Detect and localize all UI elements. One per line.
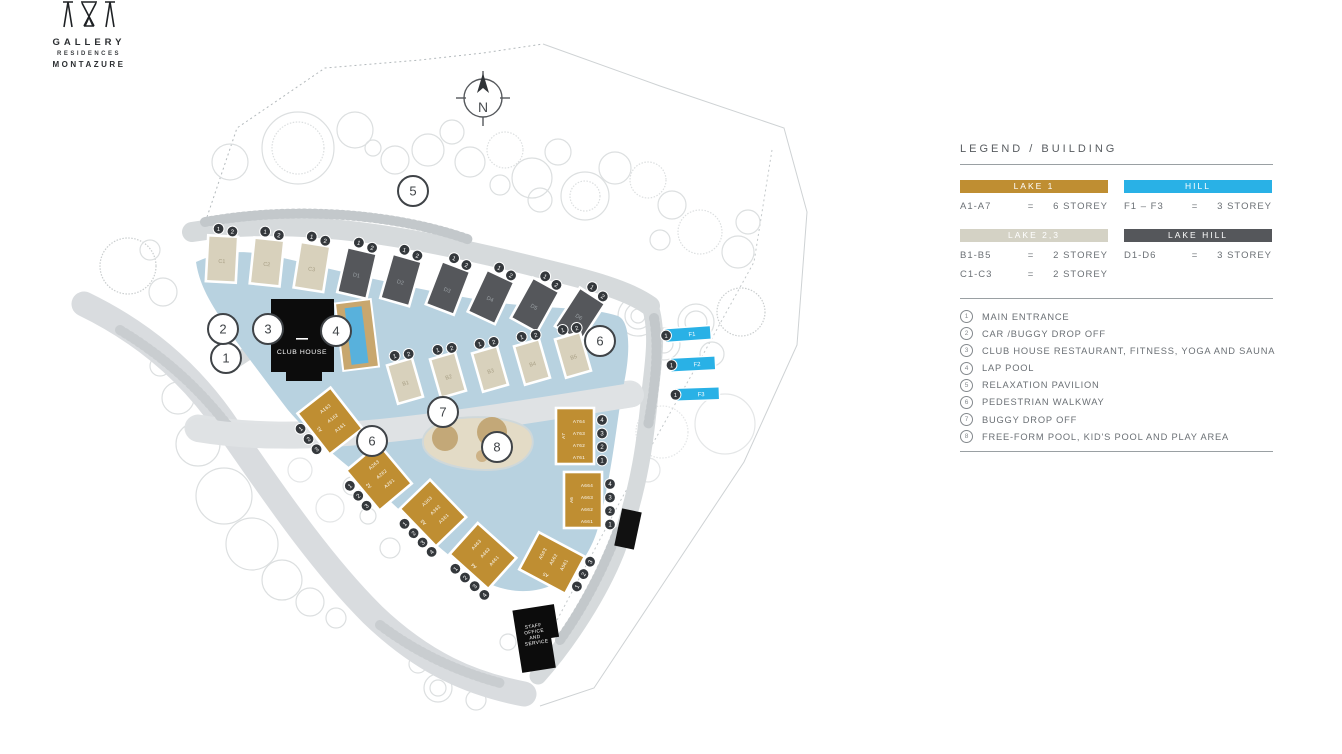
legend-storey-row: B1-B5=2 STOREY	[960, 250, 1108, 261]
legend-storey-row: F1 – F3=3 STOREY	[1124, 201, 1272, 212]
legend-color-bar: LAKE HILL	[1124, 229, 1272, 242]
divider	[960, 164, 1273, 165]
brand-logo: GALLERY RESIDENCES MONTAZURE	[50, 0, 128, 69]
map-marker-3: 3	[253, 314, 283, 344]
compass-north-label: N	[478, 99, 488, 115]
svg-text:6: 6	[368, 434, 375, 449]
poi-item-3: 3CLUB HOUSE RESTAURANT, FITNESS, YOGA AN…	[960, 344, 1273, 357]
legend-groups: LAKE 1A1-A7=6 STOREYHILLF1 – F3=3 STOREY…	[960, 180, 1273, 280]
svg-text:2: 2	[219, 322, 226, 337]
poi-number: 3	[960, 344, 973, 357]
svg-text:C1: C1	[218, 259, 225, 265]
legend-group-lake-hill: LAKE HILLD1-D6=3 STOREY	[1124, 229, 1272, 280]
poi-number: 8	[960, 430, 973, 443]
svg-text:A6: A6	[569, 497, 574, 503]
legend-storey-row: A1-A7=6 STOREY	[960, 201, 1108, 212]
map-marker-2: 2	[208, 314, 238, 344]
brand-line3: MONTAZURE	[50, 60, 128, 69]
page: CLUB HOUSE STAFF OFFICE AND SERVICE C112…	[0, 0, 1342, 754]
svg-text:7: 7	[439, 405, 446, 420]
svg-text:4: 4	[332, 324, 339, 339]
map-marker-4: 4	[321, 316, 351, 346]
legend-storey-row: C1-C3=2 STOREY	[960, 269, 1108, 280]
poi-label: BUGGY DROP OFF	[982, 415, 1077, 425]
legend-group-lake-1: LAKE 1A1-A7=6 STOREY	[960, 180, 1108, 212]
svg-text:A661: A661	[581, 519, 593, 524]
brand-line2: RESIDENCES	[50, 51, 128, 57]
poi-label: FREE-FORM POOL, KID'S POOL AND PLAY AREA	[982, 432, 1229, 442]
legend-color-bar: LAKE 2,3	[960, 229, 1108, 242]
legend-storey-row: D1-D6=3 STOREY	[1124, 250, 1272, 261]
compass-icon: N	[456, 71, 510, 126]
svg-text:C3: C3	[308, 266, 316, 273]
svg-text:A663: A663	[581, 495, 593, 500]
poi-item-4: 4LAP POOL	[960, 362, 1273, 375]
map-marker-6: 6	[357, 426, 387, 456]
building-F1: F11	[660, 325, 711, 342]
svg-text:F1: F1	[688, 332, 696, 339]
svg-text:A761: A761	[573, 455, 585, 460]
club-house-label: CLUB HOUSE	[277, 349, 327, 356]
brand-logo-icon	[61, 0, 117, 28]
poi-label: CLUB HOUSE RESTAURANT, FITNESS, YOGA AND…	[982, 346, 1275, 356]
map-marker-6: 6	[585, 326, 615, 356]
legend-group-hill: HILLF1 – F3=3 STOREY	[1124, 180, 1272, 212]
svg-text:6: 6	[596, 334, 603, 349]
legend-color-bar: LAKE 1	[960, 180, 1108, 193]
svg-text:5: 5	[409, 184, 416, 199]
svg-text:A664: A664	[581, 483, 593, 488]
legend-title: LEGEND / BUILDING	[960, 143, 1273, 155]
poi-number: 1	[960, 310, 973, 323]
poi-list: 1MAIN ENTRANCE2CAR /BUGGY DROP OFF3CLUB …	[960, 310, 1273, 443]
utility-building	[614, 508, 641, 549]
poi-item-6: 6PEDESTRIAN WALKWAY	[960, 396, 1273, 409]
svg-text:1: 1	[222, 351, 229, 366]
svg-text:A764: A764	[573, 419, 585, 424]
poi-label: PEDESTRIAN WALKWAY	[982, 397, 1105, 407]
poi-item-5: 5RELAXATION PAVILION	[960, 379, 1273, 392]
svg-text:A7: A7	[561, 433, 566, 439]
poi-number: 4	[960, 362, 973, 375]
svg-text:3: 3	[264, 322, 271, 337]
svg-text:A762: A762	[573, 443, 585, 448]
svg-text:F2: F2	[693, 362, 701, 368]
poi-item-8: 8FREE-FORM POOL, KID'S POOL AND PLAY ARE…	[960, 430, 1273, 443]
svg-text:A662: A662	[581, 507, 593, 512]
poi-item-7: 7BUGGY DROP OFF	[960, 413, 1273, 426]
building-A6: A6A664A663A662A6614321	[564, 472, 615, 530]
map-marker-8: 8	[482, 432, 512, 462]
brand-line1: GALLERY	[50, 37, 128, 48]
poi-label: RELAXATION PAVILION	[982, 380, 1100, 390]
legend-group-lake-2-3: LAKE 2,3B1-B5=2 STOREYC1-C3=2 STOREY	[960, 229, 1108, 280]
svg-text:C2: C2	[263, 262, 271, 269]
poi-item-2: 2CAR /BUGGY DROP OFF	[960, 327, 1273, 340]
poi-number: 7	[960, 413, 973, 426]
poi-label: LAP POOL	[982, 363, 1034, 373]
svg-text:A763: A763	[573, 431, 585, 436]
legend-color-bar: HILL	[1124, 180, 1272, 193]
poi-number: 6	[960, 396, 973, 409]
poi-number: 5	[960, 379, 973, 392]
svg-text:F3: F3	[697, 392, 705, 398]
map-marker-5: 5	[398, 176, 428, 206]
divider	[960, 451, 1273, 452]
poi-number: 2	[960, 327, 973, 340]
map-marker-7: 7	[428, 397, 458, 427]
building-F3: F31	[670, 387, 720, 402]
poi-label: CAR /BUGGY DROP OFF	[982, 329, 1106, 339]
svg-text:8: 8	[493, 440, 500, 455]
divider	[960, 298, 1273, 299]
poi-item-1: 1MAIN ENTRANCE	[960, 310, 1273, 323]
building-F2: F21	[666, 356, 716, 373]
legend-panel: LEGEND / BUILDING LAKE 1A1-A7=6 STOREYHI…	[960, 143, 1273, 452]
building-A7: A7A764A763A762A7614321	[556, 408, 607, 466]
poi-label: MAIN ENTRANCE	[982, 312, 1069, 322]
map-marker-1: 1	[211, 343, 241, 373]
